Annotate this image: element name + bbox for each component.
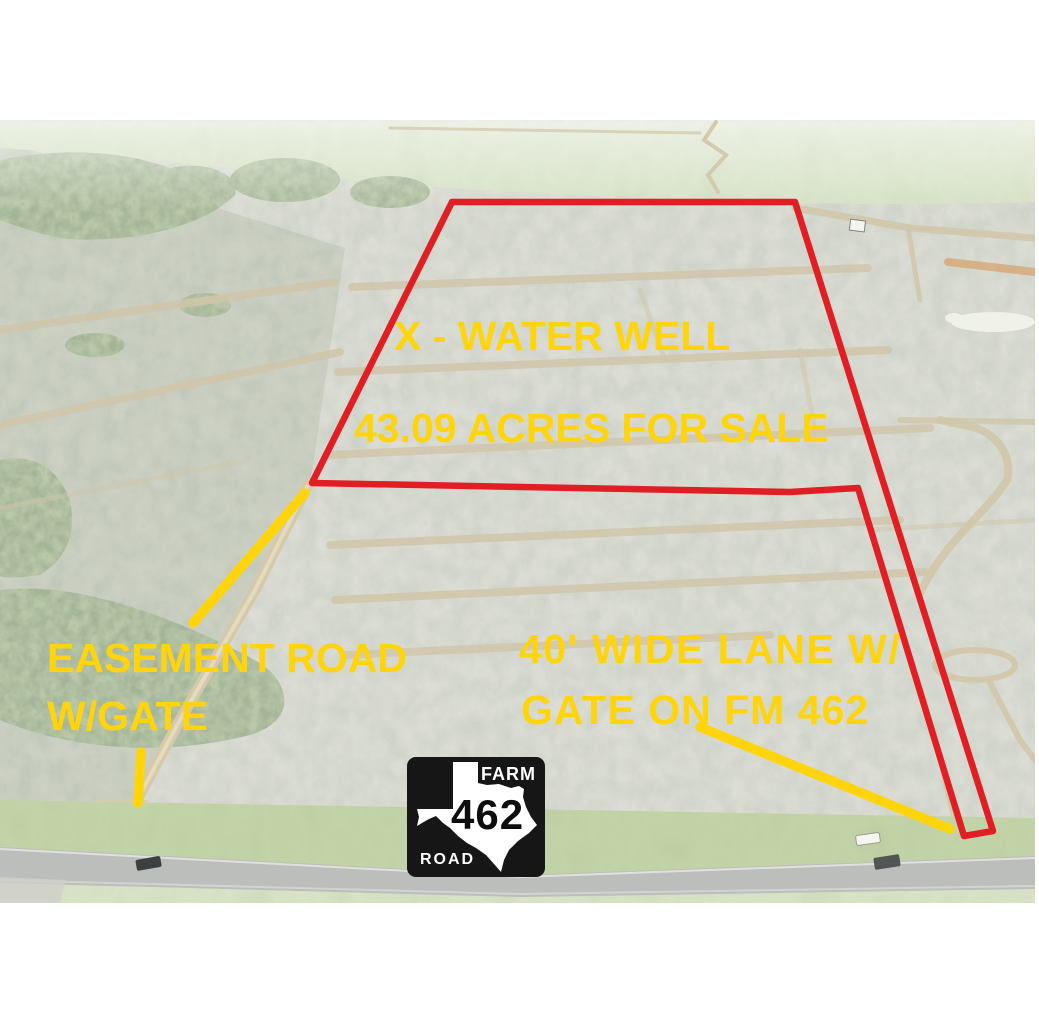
listing-image: X - WATER WELL 43.09 ACRES FOR SALE EASE… (0, 0, 1039, 1024)
easement-road-label-line1: EASEMENT ROAD (47, 638, 407, 679)
fm-462-road-sign: FARM 462 ROAD (407, 757, 545, 877)
water-well-label: X - WATER WELL (394, 316, 730, 357)
sign-road-label: ROAD (420, 852, 475, 868)
easement-road-label-line2: W/GATE (47, 696, 208, 737)
sign-farm-label: FARM (481, 765, 536, 783)
sign-route-number: 462 (451, 794, 524, 836)
lane-label-line1: 40' WIDE LANE W/ (519, 629, 901, 670)
acreage-label: 43.09 ACRES FOR SALE (354, 408, 829, 449)
lane-label-line2: GATE ON FM 462 (521, 690, 869, 731)
